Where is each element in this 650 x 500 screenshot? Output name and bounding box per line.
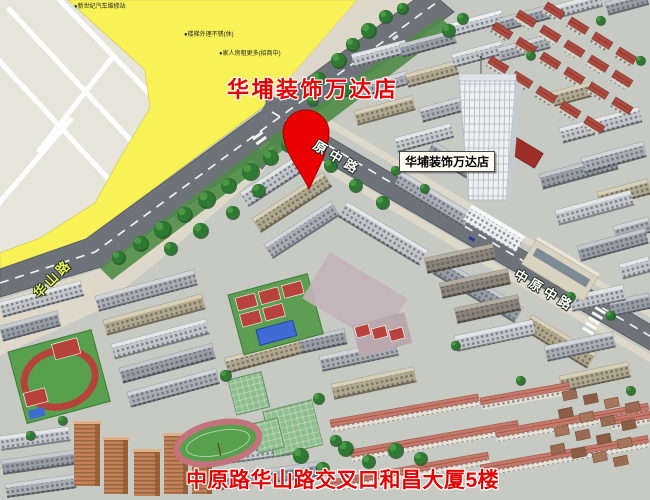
poi-micro-label[interactable]: ●家人房租更多(招商中): [219, 48, 281, 57]
tree: [199, 192, 207, 200]
map-shape: [480, 56, 483, 59]
map-shape: [123, 440, 128, 494]
building-tower-brick: [103, 437, 129, 494]
tree: [264, 151, 271, 158]
tree: [516, 376, 521, 381]
tree: [165, 243, 171, 249]
tree: [606, 311, 611, 316]
tree: [113, 252, 119, 258]
tree: [294, 449, 301, 456]
building-tower-brick: [133, 449, 161, 496]
poi-micro-label[interactable]: ●新世纪汽车维修站: [74, 1, 126, 10]
map-shape: [155, 452, 160, 496]
tree: [458, 14, 463, 19]
tree: [377, 197, 383, 203]
tree: [363, 456, 369, 462]
building-tower-brick: [73, 421, 101, 486]
tree: [178, 208, 185, 215]
map-shape: [95, 424, 100, 486]
tree: [636, 56, 641, 61]
tree: [350, 180, 356, 186]
address-overlay: 中原路华山路交叉口和昌大厦5楼: [186, 464, 499, 494]
tree: [347, 39, 353, 45]
tree: [596, 16, 601, 21]
tree: [389, 444, 396, 451]
tree: [331, 436, 336, 441]
tree: [227, 207, 233, 213]
tree: [362, 24, 369, 31]
tree: [380, 11, 386, 17]
building-highrise-tower: [458, 56, 521, 201]
tree: [58, 416, 63, 421]
tree: [221, 371, 226, 376]
map-shape: [459, 74, 516, 81]
store-poi-label[interactable]: 华埔装饰万达店: [399, 151, 495, 172]
tree: [451, 341, 456, 346]
store-title-overlay: 华埔装饰万达店: [227, 72, 399, 104]
tree: [134, 237, 141, 244]
tree: [391, 166, 396, 171]
tree: [194, 224, 201, 231]
tree: [155, 222, 163, 230]
tree: [243, 164, 251, 172]
tree: [626, 386, 631, 391]
tree: [398, 3, 403, 8]
tree: [253, 185, 259, 191]
tree: [314, 394, 319, 399]
tree: [443, 25, 449, 31]
tree: [415, 453, 421, 459]
tree: [222, 179, 229, 186]
map-canvas[interactable]: ●新世纪汽车维修站 ●楼梯外理不锈(休) ●家人房租更多(招商中) 原中路 中原…: [0, 0, 650, 500]
tree: [332, 54, 339, 61]
poi-micro-label[interactable]: ●楼梯外理不锈(休): [184, 29, 234, 38]
tree: [420, 184, 425, 189]
tree: [526, 51, 531, 56]
tree: [26, 431, 31, 436]
